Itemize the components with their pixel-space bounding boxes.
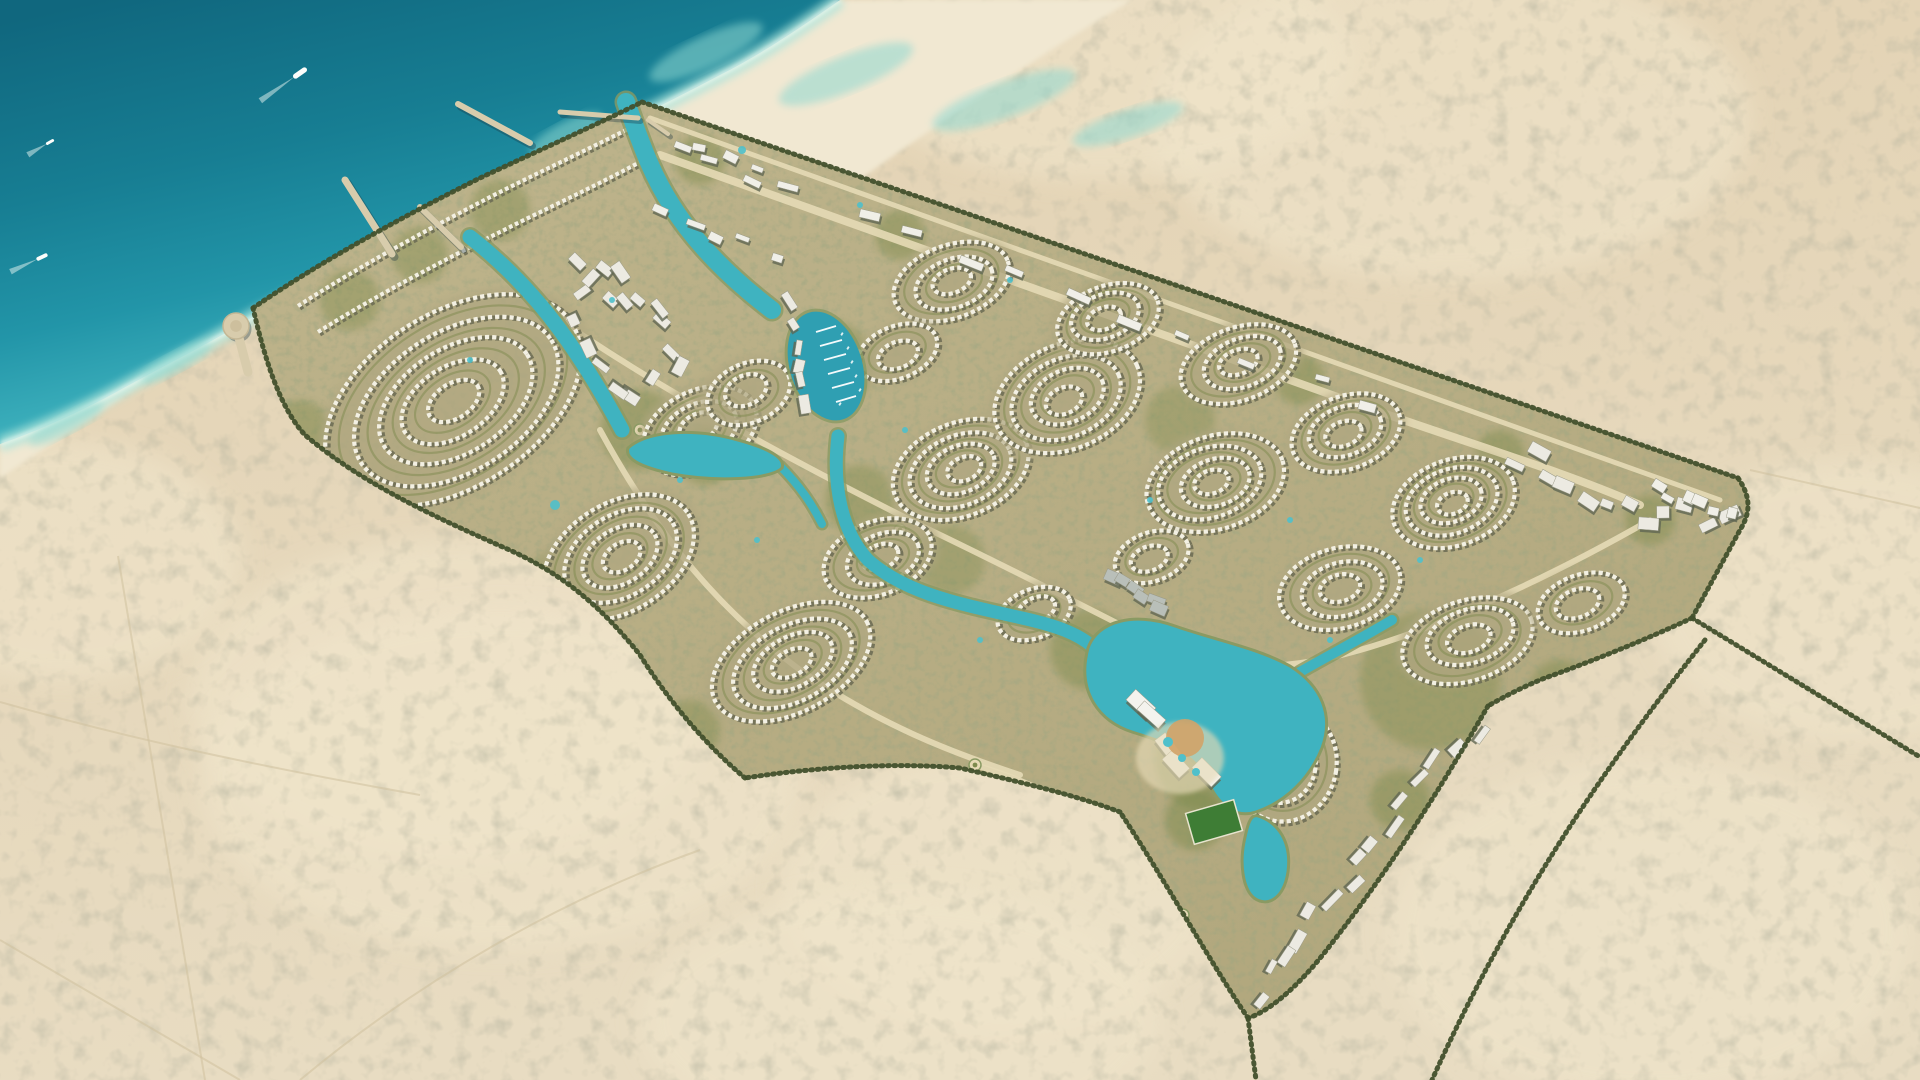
east-district-blocks-8 (1657, 506, 1670, 518)
swimming-pool-10 (977, 637, 983, 643)
swimming-pool-2 (550, 500, 560, 510)
masterplan-aerial-view (0, 0, 1920, 1080)
waterpark-pool-2 (1192, 768, 1200, 776)
swimming-pool-6 (677, 477, 683, 483)
swimming-pool-5 (754, 537, 760, 543)
swimming-pool-8 (1287, 517, 1293, 523)
waterpark-pool-0 (1163, 737, 1173, 747)
roundabout-center-4 (973, 763, 978, 768)
swimming-pool-12 (1327, 637, 1333, 643)
swimming-pool-11 (467, 357, 473, 363)
swimming-pool-9 (1417, 557, 1423, 563)
swimming-pool-13 (609, 297, 615, 303)
round-pier-center (230, 320, 242, 332)
swimming-pool-4 (902, 427, 908, 433)
viewport (0, 0, 1920, 1080)
swimming-pool-7 (1147, 497, 1153, 503)
swimming-pool-3 (1007, 277, 1013, 283)
swimming-pool-1 (857, 202, 863, 208)
waterpark-pool-1 (1178, 754, 1186, 762)
east-district-blocks-7 (1638, 517, 1659, 531)
swimming-pool-0 (738, 146, 746, 154)
waterpark (1166, 719, 1204, 757)
